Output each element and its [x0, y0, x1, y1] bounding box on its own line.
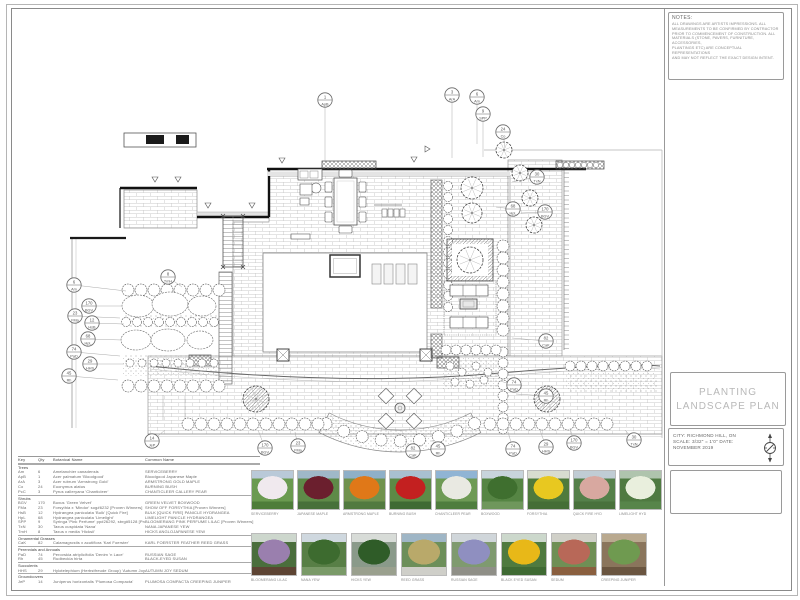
svg-text:170: 170 — [542, 206, 550, 211]
plant-callout-HHS: 29HHS — [83, 357, 124, 371]
plant-photo-image — [619, 470, 662, 510]
legend-plant-row: HHS29Hylotelephium (Herbstfreude Group) … — [18, 569, 260, 574]
svg-text:Rh: Rh — [436, 451, 441, 455]
plant-callout-BGV: 170BGV — [82, 299, 122, 313]
svg-text:23: 23 — [73, 310, 78, 315]
legend-plant-row-cell: AUTUMN JOY SEDUM — [145, 569, 260, 574]
plant-callout-Am: 6Am — [67, 278, 126, 292]
plant-photo-label: LIMELIGHT HYD — [619, 512, 662, 516]
svg-text:FMa: FMa — [294, 448, 302, 452]
legend-plant-row-cell: HICKS ANGLOJAPANESE YEW — [145, 530, 260, 535]
plant-photo-image — [527, 470, 570, 510]
svg-text:PaD: PaD — [70, 354, 78, 358]
drawing-title-line1: PLANTING — [699, 387, 757, 398]
plant-callout-PaD: 74PaD — [67, 345, 120, 359]
plant-photo: BURNING BUSH — [389, 470, 432, 516]
plant-photo-label: BURNING BUSH — [389, 512, 432, 516]
plant-photo-label: ARMSTRONG MAPLE — [343, 512, 386, 516]
plant-photo: REED GRASS — [401, 533, 447, 582]
svg-text:PaD: PaD — [510, 387, 518, 391]
svg-text:74: 74 — [512, 379, 517, 384]
svg-text:68: 68 — [86, 333, 91, 338]
legend-plant-row-cell: Calamagrostis x acutiflora 'Karl Foerste… — [53, 541, 145, 546]
svg-text:30: 30 — [535, 171, 540, 176]
legend-header-row-cell: Qty — [38, 458, 53, 463]
legend-plant-row: JeP14Juniperus horizontalis 'Plumosa Com… — [18, 580, 260, 585]
svg-text:Am: Am — [474, 99, 480, 103]
svg-text:24: 24 — [501, 126, 506, 131]
plant-photo-image — [601, 533, 647, 576]
plant-photo-label: CREEPING JUNIPER — [601, 578, 647, 582]
plant-photo-image — [301, 533, 347, 576]
svg-text:12: 12 — [90, 317, 95, 322]
legend-plant-row-cell: Taxus x media 'Hicksii' — [53, 530, 145, 535]
plant-photo-image — [435, 470, 478, 510]
plant-photo-image — [551, 533, 597, 576]
legend-plant-row-cell: CaK — [18, 541, 38, 546]
svg-text:BGV: BGV — [261, 450, 269, 454]
plant-photo-label: CHANTICLEER PEAR — [435, 512, 478, 516]
plant-photos-row-top: SERVICEBERRYJAPANESE MAPLEARMSTRONG MAPL… — [251, 470, 662, 516]
svg-text:HsB: HsB — [88, 325, 96, 329]
plant-photo-image — [481, 470, 524, 510]
notes-body: ALL DRAWINGS ARE ARTISTS IMPRESSIONS. AL… — [672, 22, 780, 60]
svg-text:45: 45 — [436, 443, 441, 448]
svg-text:HHS: HHS — [542, 449, 550, 453]
plant-photo-image — [343, 470, 386, 510]
svg-text:TmH: TmH — [164, 279, 172, 283]
svg-text:29: 29 — [544, 441, 549, 446]
svg-text:45: 45 — [544, 390, 549, 395]
plant-photo-image — [401, 533, 447, 576]
legend-plant-row-cell: 14 — [38, 580, 53, 585]
plant-callout-HpL: 68HpL — [81, 332, 122, 346]
plant-photo: CHANTICLEER PEAR — [435, 470, 478, 516]
plant-photo-image — [351, 533, 397, 576]
plant-photo-image — [573, 470, 616, 510]
svg-text:68: 68 — [511, 203, 516, 208]
svg-text:CaK: CaK — [409, 453, 417, 457]
plant-photo: LIMELIGHT HYD — [619, 470, 662, 516]
legend-plant-row-cell: Juniperus horizontalis 'Plumosa Compacta… — [53, 580, 145, 585]
svg-text:BGV: BGV — [570, 445, 578, 449]
notes-box: NOTES: ALL DRAWINGS ARE ARTISTS IMPRESSI… — [668, 12, 784, 80]
svg-text:BGV: BGV — [85, 308, 93, 312]
plant-photo-label: BLOOMERANG LILAC — [251, 578, 297, 582]
plant-photo: HICKS YEW — [351, 533, 397, 582]
plant-photo: ARMSTRONG MAPLE — [343, 470, 386, 516]
svg-text:74: 74 — [511, 443, 516, 448]
svg-text:Rh: Rh — [544, 398, 549, 402]
plant-callout-ApB: 1ApB — [318, 93, 332, 162]
plant-photo-image — [451, 533, 497, 576]
plant-photo-label: REED GRASS — [401, 578, 447, 582]
legend-header-row-cell: Common Name — [145, 458, 260, 463]
svg-text:Co: Co — [501, 134, 506, 138]
legend-plant-row-cell: 3 — [38, 490, 53, 495]
legend-plant-row-cell: PcC — [18, 490, 38, 495]
legend-plant-row: TmH8Taxus x media 'Hicksii'HICKS ANGLOJA… — [18, 530, 260, 535]
plant-photo-label: JAPANESE MAPLE — [297, 512, 340, 516]
plant-photos-row-bottom: BLOOMERANG LILACNANA YEWHICKS YEWREED GR… — [251, 533, 647, 582]
legend-plant-row-cell: TmH — [18, 530, 38, 535]
svg-text:BGV: BGV — [541, 214, 549, 218]
svg-text:170: 170 — [262, 442, 270, 447]
legend-plant-row-cell: KARL FOERSTER FEATHER REED GRASS — [145, 541, 260, 546]
legend-plant-row-cell: Rudbeckia hirta — [53, 557, 145, 562]
plant-photo-label: SEDUM — [551, 578, 597, 582]
plant-photo-label: QUICK FIRE HYD — [573, 512, 616, 516]
legend-plant-row-cell: PLUMOSA COMPACTA CREEPING JUNIPER — [145, 580, 260, 585]
svg-text:29: 29 — [88, 358, 93, 363]
plant-callout-FMa: 23FMa — [291, 432, 305, 453]
svg-text:PaD: PaD — [509, 451, 517, 455]
svg-text:82: 82 — [411, 445, 416, 450]
svg-text:ApB: ApB — [321, 102, 329, 106]
legend-plant-row: CaK82Calamagrostis x acutiflora 'Karl Fo… — [18, 541, 260, 546]
drawing-title-box: PLANTING LANDSCAPE PLAN — [670, 372, 786, 426]
plant-photo-label: BLACK EYED SUSAN — [501, 578, 547, 582]
plant-photo-label: BOXWOOD — [481, 512, 524, 516]
legend-plant-row-cell: JeP — [18, 580, 38, 585]
plant-photo: FORSYTHIA — [527, 470, 570, 516]
plant-photo-image — [389, 470, 432, 510]
svg-text:30: 30 — [632, 434, 637, 439]
plant-photo: BOXWOOD — [481, 470, 524, 516]
legend-plant-row-cell: BLACK-EYED SUSAN — [145, 557, 260, 562]
plant-photo-label: NANA YEW — [301, 578, 347, 582]
svg-text:HHS: HHS — [86, 366, 94, 370]
legend-plant-row-cell: HHS — [18, 569, 38, 574]
svg-text:CaK: CaK — [542, 343, 550, 347]
plant-photo: SERVICEBERRY — [251, 470, 294, 516]
plant-photo: QUICK FIRE HYD — [573, 470, 616, 516]
plant-photo-image — [297, 470, 340, 510]
revision-box — [670, 470, 782, 514]
svg-text:SPP: SPP — [479, 116, 487, 120]
svg-text:TxN: TxN — [631, 442, 638, 446]
svg-text:ArA: ArA — [449, 97, 456, 101]
legend-plant-row: PcC3Pyrus calleryana 'Chanticleer'CHANTI… — [18, 490, 260, 495]
plant-photo: RUSSIAN SAGE — [451, 533, 497, 582]
plant-schedule-table: KeyQtyBotanical NameCommon NameTreesAm6A… — [18, 456, 260, 585]
legend-header-row-cell: Key — [18, 458, 38, 463]
plant-photo-label: HICKS YEW — [351, 578, 397, 582]
svg-text:23: 23 — [296, 440, 301, 445]
plant-photo: BLACK EYED SUSAN — [501, 533, 547, 582]
svg-text:74: 74 — [72, 346, 77, 351]
legend-plant-row-cell: Pyrus calleryana 'Chanticleer' — [53, 490, 145, 495]
plant-callout-PaD: 74PaD — [506, 432, 520, 456]
svg-text:JeP: JeP — [149, 443, 156, 447]
svg-text:170: 170 — [86, 300, 94, 305]
plant-photo-label: FORSYTHIA — [527, 512, 570, 516]
legend-plant-row-cell: 8 — [38, 530, 53, 535]
legend-plant-row-cell: Hylotelephium (Herbstfreude Group) 'Autu… — [53, 569, 145, 574]
svg-text:Rh: Rh — [67, 378, 72, 382]
plant-photo-image — [501, 533, 547, 576]
svg-text:HpL: HpL — [510, 211, 517, 215]
plant-photo-image — [251, 470, 294, 510]
svg-text:Am: Am — [71, 287, 77, 291]
legend-plant-row-cell: 82 — [38, 541, 53, 546]
plant-photo-image — [251, 533, 297, 576]
legend-plant-row: Rh45Rudbeckia hirtaBLACK-EYED SUSAN — [18, 557, 260, 562]
plant-photo: CREEPING JUNIPER — [601, 533, 647, 582]
legend-header-row-cell: Botanical Name — [53, 458, 145, 463]
drawing-title-line2: LANDSCAPE PLAN — [676, 401, 779, 412]
notes-title: NOTES: — [672, 15, 780, 21]
legend-plant-row-cell: 45 — [38, 557, 53, 562]
plant-photo-label: SERVICEBERRY — [251, 512, 294, 516]
svg-text:82: 82 — [544, 335, 549, 340]
svg-text:FMa: FMa — [71, 318, 79, 322]
svg-text:170: 170 — [571, 437, 579, 442]
legend-plant-row-cell: Rh — [18, 557, 38, 562]
svg-text:HpL: HpL — [85, 341, 92, 345]
svg-text:45: 45 — [67, 370, 72, 375]
plant-callout-SPP: 9SPP — [476, 107, 490, 157]
svg-text:TxN: TxN — [534, 179, 541, 183]
north-arrow-icon — [758, 432, 782, 464]
legend-plant-row-cell: CHANTICLEER CALLERY PEAR — [145, 490, 260, 495]
plant-photo: SEDUM — [551, 533, 597, 582]
plant-photo: NANA YEW — [301, 533, 347, 582]
plant-photo-label: RUSSIAN SAGE — [451, 578, 497, 582]
legend-plant-row-cell: 29 — [38, 569, 53, 574]
plant-callout-ArA: 3ArA — [445, 88, 459, 158]
svg-text:14: 14 — [150, 435, 155, 440]
plant-photo: BLOOMERANG LILAC — [251, 533, 297, 582]
plant-photo: JAPANESE MAPLE — [297, 470, 340, 516]
